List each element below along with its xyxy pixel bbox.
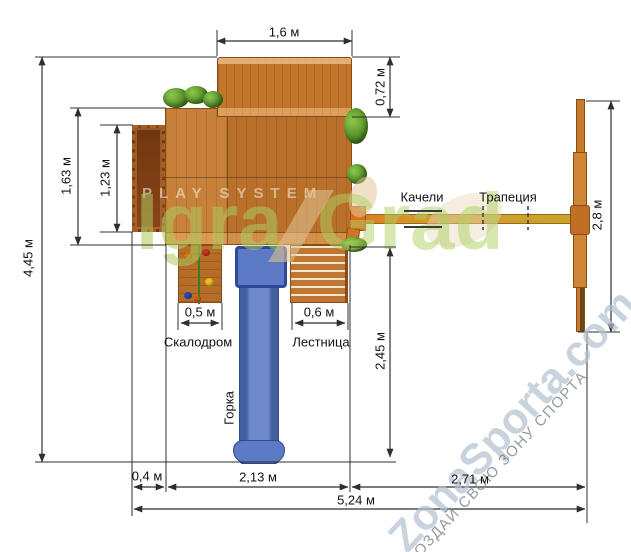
dimension-arrows (42, 41, 611, 509)
dim-label-roof-depth: 0,72 м (373, 68, 388, 106)
dim-label-left-depth: 1,63 м (59, 157, 74, 195)
extension-lines (35, 30, 620, 523)
dim-label-total-width: 5,24 м (337, 493, 375, 508)
dim-label-swing-span: 2,71 м (451, 472, 489, 487)
dim-label-ladder-width: 0,6 м (304, 305, 335, 320)
dim-label-platform-span: 2,13 м (239, 470, 277, 485)
dim-label-total-depth: 4,45 м (21, 239, 36, 277)
swing-attachment-marks (404, 211, 442, 227)
label-trapeze: Трапеция (479, 190, 537, 205)
dim-label-balcony-span: 1,23 м (98, 159, 113, 197)
label-slide: Горка (222, 391, 237, 425)
label-climbing-wall: Скалодром (164, 335, 232, 350)
dim-label-slide-length: 2,45 м (373, 332, 388, 370)
trapeze-attachment-marks (483, 206, 528, 230)
label-swing: Качели (401, 190, 444, 205)
label-ladder: Лестница (292, 335, 349, 350)
dim-label-swing-frame-width: 2,8 м (590, 200, 605, 231)
playground-top-view-diagram: PLAY SYSTEM Igra Grad (0, 0, 631, 552)
dimension-lines-layer (0, 0, 631, 552)
dim-label-balcony-depth: 0,4 м (132, 469, 163, 484)
dim-label-top-width: 1,6 м (269, 25, 300, 40)
dim-label-climb-width: 0,5 м (185, 305, 216, 320)
